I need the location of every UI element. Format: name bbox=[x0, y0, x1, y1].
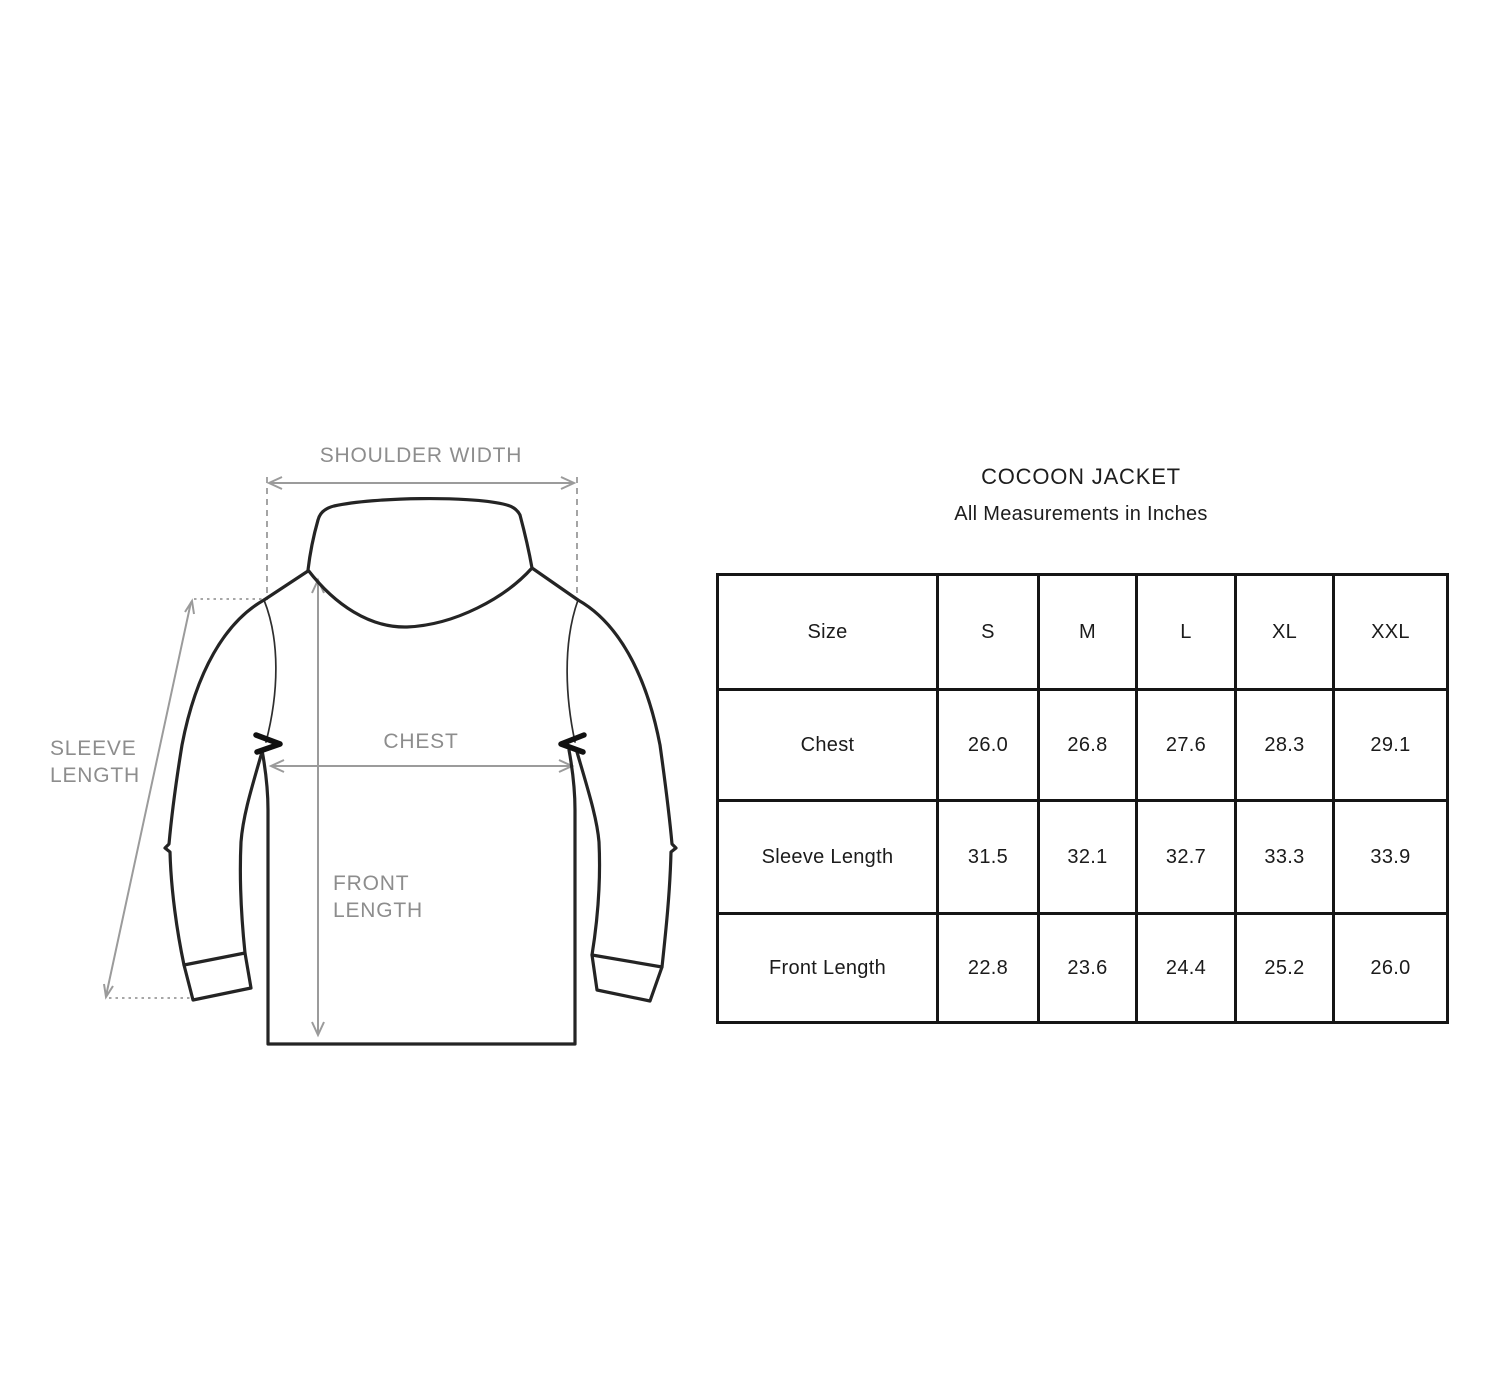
left-cuff bbox=[184, 953, 251, 1000]
right-armhole-seam bbox=[567, 600, 578, 742]
front-value-l: 24.4 bbox=[1137, 914, 1236, 1023]
body-outline bbox=[262, 750, 575, 1044]
row-label-front-length: Front Length bbox=[718, 914, 938, 1023]
table-row-front-length: Front Length 22.8 23.6 24.4 25.2 26.0 bbox=[718, 914, 1448, 1023]
table-header-row: Size S M L XL XXL bbox=[718, 575, 1448, 690]
front-length-label-line1: FRONT bbox=[333, 872, 409, 895]
sleeve-value-xxl: 33.9 bbox=[1334, 801, 1448, 914]
front-value-xl: 25.2 bbox=[1236, 914, 1334, 1023]
sleeve-length-label-line1: SLEEVE bbox=[50, 737, 137, 760]
hood-outline bbox=[308, 499, 532, 627]
column-header-xxl: XXL bbox=[1334, 575, 1448, 690]
left-armhole-seam bbox=[264, 600, 276, 742]
front-length-arrow bbox=[312, 580, 324, 1035]
column-header-m: M bbox=[1039, 575, 1137, 690]
sleeve-length-label-line2: LENGTH bbox=[50, 764, 140, 787]
chest-value-xxl: 29.1 bbox=[1334, 690, 1448, 801]
column-header-xl: XL bbox=[1236, 575, 1334, 690]
front-value-xxl: 26.0 bbox=[1334, 914, 1448, 1023]
right-underarm-notch bbox=[561, 735, 584, 752]
left-underarm-notch bbox=[256, 735, 280, 752]
page-title: COCOON JACKET bbox=[716, 464, 1446, 490]
sleeve-value-m: 32.1 bbox=[1039, 801, 1137, 914]
chest-value-m: 26.8 bbox=[1039, 690, 1137, 801]
right-shoulder-line bbox=[532, 568, 578, 600]
size-chart-table: Size S M L XL XXL Chest 26.0 26.8 27.6 2… bbox=[716, 573, 1449, 1024]
shoulder-width-arrow bbox=[269, 477, 574, 489]
sleeve-value-l: 32.7 bbox=[1137, 801, 1236, 914]
column-header-l: L bbox=[1137, 575, 1236, 690]
chest-value-l: 27.6 bbox=[1137, 690, 1236, 801]
sleeve-value-xl: 33.3 bbox=[1236, 801, 1334, 914]
sleeve-length-arrow bbox=[104, 601, 194, 997]
row-label-chest: Chest bbox=[718, 690, 938, 801]
right-cuff bbox=[592, 955, 662, 1001]
sleeve-value-s: 31.5 bbox=[938, 801, 1039, 914]
table-row-chest: Chest 26.0 26.8 27.6 28.3 29.1 bbox=[718, 690, 1448, 801]
chest-arrow bbox=[271, 760, 572, 772]
table-row-sleeve-length: Sleeve Length 31.5 32.1 32.7 33.3 33.9 bbox=[718, 801, 1448, 914]
row-label-sleeve-length: Sleeve Length bbox=[718, 801, 938, 914]
size-guide-page: SHOULDER WIDTH SLEEVE LENGTH CHEST FRONT… bbox=[0, 0, 1500, 1396]
left-shoulder-line bbox=[264, 571, 308, 600]
chest-label: CHEST bbox=[383, 730, 458, 753]
column-header-size: Size bbox=[718, 575, 938, 690]
left-sleeve-inner-edge bbox=[240, 752, 262, 953]
page-subtitle: All Measurements in Inches bbox=[716, 503, 1446, 526]
chest-value-s: 26.0 bbox=[938, 690, 1039, 801]
shoulder-width-label: SHOULDER WIDTH bbox=[320, 444, 523, 467]
right-sleeve-outer-edge bbox=[578, 600, 676, 967]
column-header-s: S bbox=[938, 575, 1039, 690]
front-value-m: 23.6 bbox=[1039, 914, 1137, 1023]
front-length-label-line2: LENGTH bbox=[333, 899, 423, 922]
chest-value-xl: 28.3 bbox=[1236, 690, 1334, 801]
front-value-s: 22.8 bbox=[938, 914, 1039, 1023]
right-sleeve-inner-edge bbox=[577, 752, 600, 955]
